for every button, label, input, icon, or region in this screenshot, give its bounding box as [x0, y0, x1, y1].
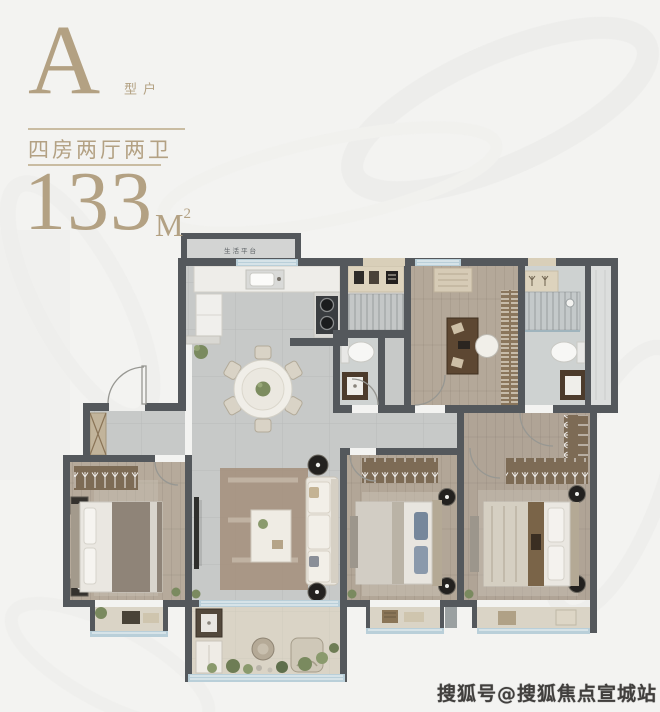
bay-box [122, 611, 140, 624]
area-figure: 133 M 2 [24, 160, 191, 244]
bay-pillar [445, 607, 457, 628]
dining-chair [255, 346, 271, 359]
bed [470, 502, 579, 586]
unit-type-letter: A [28, 10, 100, 110]
dining-chair [255, 419, 271, 432]
entry-door-arc [108, 367, 144, 403]
desk-chair [476, 335, 499, 358]
drying-rack [525, 271, 558, 292]
storage-box [369, 271, 379, 284]
sliding-door [199, 600, 340, 607]
bench [470, 516, 479, 572]
storage-box [354, 271, 364, 284]
divider-line [28, 128, 185, 130]
watermark: 搜狐号@搜狐焦点宣城站 [437, 679, 657, 706]
bed [350, 500, 442, 586]
vanity-sink [565, 376, 581, 395]
floorplan-poster: 生活平台 A 户型 四房两厅两卫 133 M 2 搜狐号@搜狐焦点宣城站 [0, 0, 660, 712]
plan-header: A 户型 四房两厅两卫 133 M 2 [28, 10, 248, 110]
service-balcony-label: 生活平台 [224, 246, 258, 255]
toilet [348, 342, 374, 362]
storage-box [386, 271, 398, 284]
sofa [306, 477, 338, 585]
bed [71, 502, 162, 592]
area-unit: M [155, 207, 183, 244]
tv-wall [194, 497, 199, 569]
foyer [90, 413, 106, 455]
area-value: 133 [24, 160, 153, 244]
unit-type-label: 户型 [120, 82, 158, 110]
utility-room [348, 266, 404, 330]
bench [350, 516, 358, 568]
coffee-table [251, 510, 291, 562]
toilet [551, 342, 577, 362]
entry-door-leaf [142, 366, 146, 404]
area-exponent: 2 [183, 207, 191, 222]
